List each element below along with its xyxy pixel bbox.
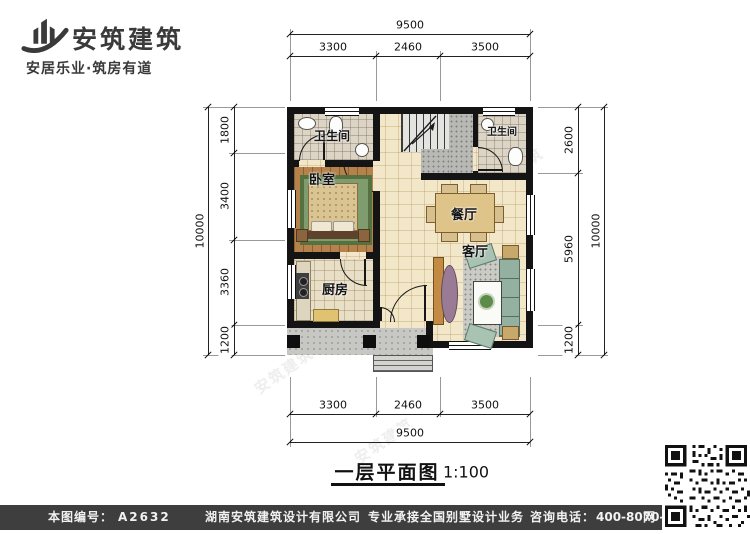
plant bbox=[480, 295, 493, 308]
dim-left-seg: 1200 bbox=[219, 324, 232, 356]
stove bbox=[296, 273, 309, 299]
entrance-steps bbox=[373, 355, 433, 372]
bed-headboard bbox=[306, 231, 358, 239]
porch bbox=[287, 328, 433, 355]
room-label-kitchen: 厨房 bbox=[309, 279, 361, 298]
brand-name: 安筑建筑 bbox=[72, 20, 184, 56]
dim-top-overall: 9500 bbox=[394, 19, 426, 32]
door-leaf bbox=[343, 160, 373, 162]
window bbox=[287, 265, 296, 299]
room-label-living: 客厅 bbox=[445, 241, 505, 260]
dim-left-seg: 3360 bbox=[219, 266, 232, 298]
dim-bottom-overall: 9500 bbox=[394, 427, 426, 440]
dim-bottom-seg: 3300 bbox=[317, 399, 349, 412]
dim-left-overall: 10000 bbox=[194, 212, 207, 251]
extension-line bbox=[530, 29, 531, 101]
extension-line bbox=[229, 153, 285, 154]
wall-interior-vertical bbox=[373, 191, 380, 328]
nightstand bbox=[296, 229, 308, 242]
porch-column bbox=[363, 335, 376, 348]
door-leaf bbox=[478, 169, 502, 171]
service-text: 专业承接全国别墅设计业务 bbox=[368, 505, 524, 530]
porch-column bbox=[287, 335, 300, 348]
stair-landing bbox=[449, 114, 473, 173]
qr-code bbox=[662, 442, 750, 530]
wall-bottom-kitchen bbox=[287, 321, 380, 328]
window bbox=[483, 107, 515, 116]
extension-line bbox=[203, 107, 285, 108]
extension-line bbox=[440, 51, 441, 101]
drawing-title: 一层平面图 bbox=[334, 458, 439, 485]
tv-cabinet bbox=[441, 265, 458, 323]
extension-line bbox=[290, 29, 291, 101]
phone-label: 咨询电话： bbox=[530, 505, 595, 530]
window bbox=[526, 195, 535, 235]
extension-line bbox=[203, 355, 285, 356]
dim-right-seg: 1200 bbox=[563, 324, 576, 356]
dim-right-overall: 10000 bbox=[590, 212, 603, 251]
room-label-bathroom-right: 卫生间 bbox=[478, 123, 526, 138]
nightstand bbox=[358, 229, 370, 242]
dim-bottom-seg: 2460 bbox=[392, 399, 424, 412]
floor-plan: 卫生间 卫生间 卧室 厨房 餐厅 客厅 bbox=[287, 107, 533, 355]
side-table bbox=[502, 326, 519, 340]
room-label-dining: 餐厅 bbox=[435, 204, 493, 223]
company-name: 湖南安筑建筑设计有限公司 bbox=[205, 505, 361, 530]
dimension-line bbox=[290, 414, 530, 415]
dim-top-seg: 2460 bbox=[392, 41, 424, 54]
stair-landing bbox=[421, 149, 449, 173]
dim-bottom-seg: 3500 bbox=[469, 399, 501, 412]
coffee-table bbox=[473, 281, 502, 325]
dim-right-seg: 5960 bbox=[563, 233, 576, 265]
title-underline bbox=[331, 483, 445, 486]
dim-right-seg: 2600 bbox=[563, 124, 576, 156]
washbasin bbox=[355, 143, 369, 157]
footer-bar: 本图编号： A2632 湖南安筑建筑设计有限公司 专业承接全国别墅设计业务 咨询… bbox=[0, 505, 750, 530]
dim-left-seg: 1800 bbox=[219, 114, 232, 146]
door-leaf bbox=[364, 259, 366, 285]
wall-bedroom-kitchen bbox=[366, 252, 373, 259]
wall-interior-vertical bbox=[373, 107, 380, 161]
dim-left-seg: 3400 bbox=[219, 180, 232, 212]
porch-column bbox=[417, 335, 430, 348]
window bbox=[526, 269, 535, 311]
door-leaf bbox=[380, 307, 382, 321]
drawing-scale: 1:100 bbox=[443, 463, 489, 482]
dimension-line bbox=[290, 442, 530, 443]
staircase bbox=[401, 114, 450, 152]
dimension-line bbox=[208, 107, 209, 355]
toilet bbox=[508, 147, 523, 166]
dimension-line bbox=[290, 34, 530, 35]
web-text: 网 bbox=[643, 505, 656, 530]
window bbox=[287, 190, 296, 228]
company-logo-icon bbox=[20, 13, 70, 59]
dimension-line bbox=[578, 107, 579, 355]
wall-dining-top bbox=[421, 173, 526, 180]
room-label-bathroom-left: 卫生间 bbox=[299, 127, 365, 144]
extension-line bbox=[229, 325, 285, 326]
drawing-number: A2632 bbox=[118, 505, 171, 530]
brand-tagline: 安居乐业·筑房有道 bbox=[26, 58, 152, 78]
dim-top-seg: 3300 bbox=[317, 41, 349, 54]
dimension-line bbox=[290, 56, 530, 57]
room-label-bedroom: 卧室 bbox=[297, 169, 347, 188]
dim-top-seg: 3500 bbox=[469, 41, 501, 54]
wall-bathroom-left bbox=[294, 160, 299, 167]
wall-bedroom-kitchen bbox=[294, 252, 340, 259]
stove-burner bbox=[299, 288, 308, 297]
drawing-number-label: 本图编号： bbox=[48, 505, 113, 530]
dimension-line bbox=[234, 107, 235, 355]
dimension-line bbox=[604, 107, 605, 355]
door-leaf bbox=[424, 285, 426, 321]
extension-line bbox=[538, 107, 608, 108]
stair-direction-arrow bbox=[402, 114, 450, 152]
extension-line bbox=[376, 51, 377, 101]
extension-line bbox=[229, 240, 285, 241]
window bbox=[325, 107, 359, 116]
kitchen-cabinet bbox=[313, 309, 339, 322]
stove-burner bbox=[299, 277, 308, 286]
